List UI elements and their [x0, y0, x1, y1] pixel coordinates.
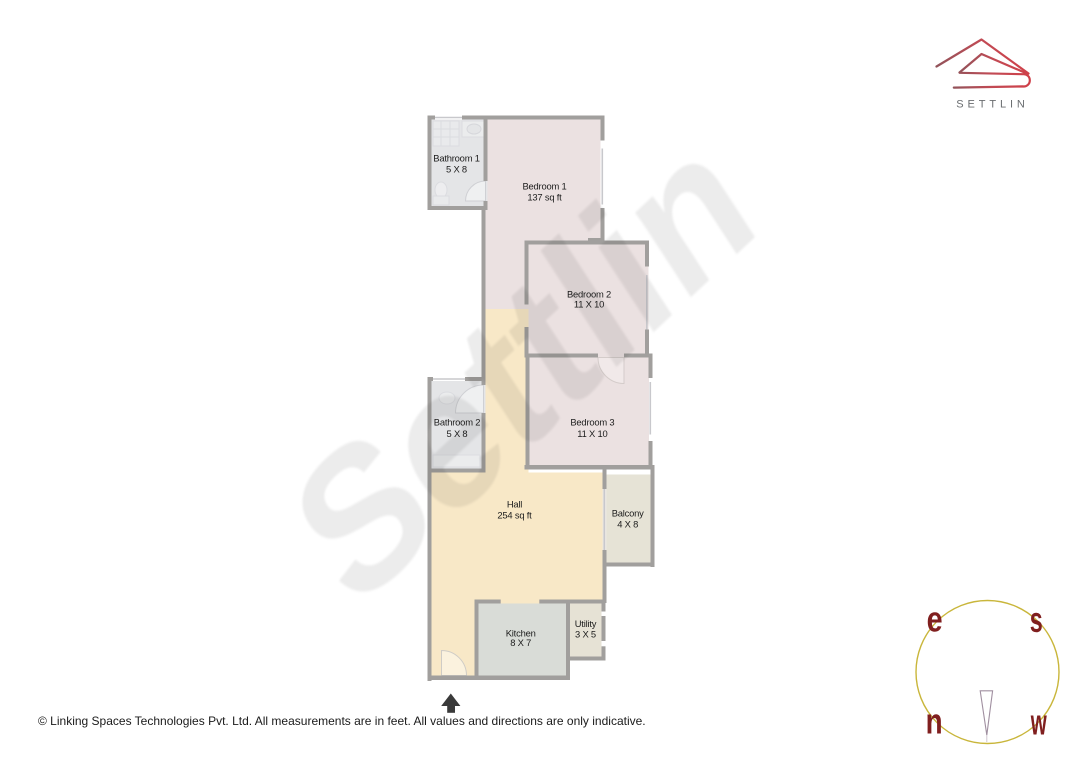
- svg-text:© Linking Spaces Technologies: © Linking Spaces Technologies Pvt. Ltd. …: [38, 714, 646, 728]
- svg-text:w: w: [1030, 702, 1047, 743]
- svg-text:Utility: Utility: [575, 618, 597, 629]
- svg-text:4 X 8: 4 X 8: [617, 519, 638, 530]
- svg-text:Bathroom 1: Bathroom 1: [433, 153, 479, 164]
- svg-text:e: e: [927, 599, 943, 640]
- svg-text:8 X 7: 8 X 7: [510, 637, 531, 648]
- svg-text:SETTLIN: SETTLIN: [956, 99, 1029, 111]
- svg-text:Balcony: Balcony: [612, 508, 644, 519]
- svg-text:n: n: [926, 701, 943, 742]
- svg-text:s: s: [1030, 599, 1043, 640]
- svg-text:3 X 5: 3 X 5: [575, 629, 596, 640]
- svg-text:5 X 8: 5 X 8: [446, 164, 467, 175]
